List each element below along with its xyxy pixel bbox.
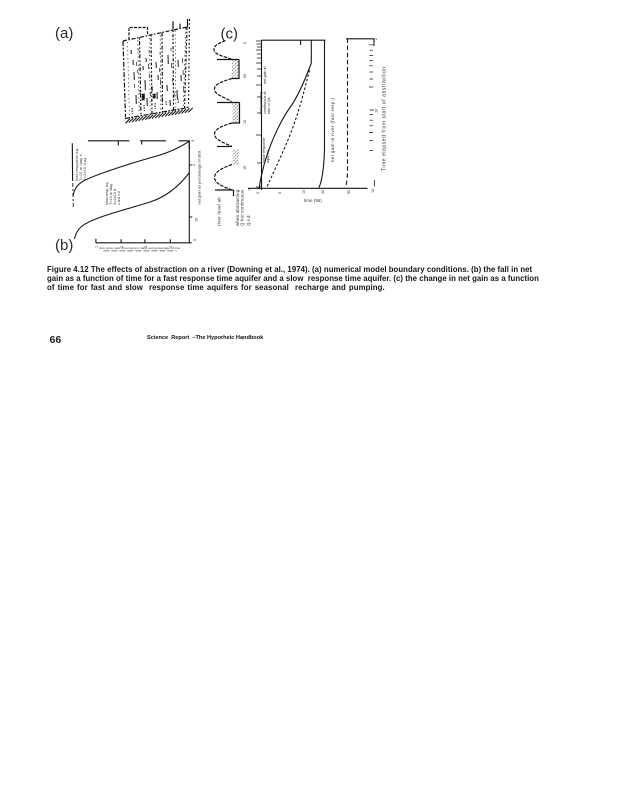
svg-text:3: 3	[191, 140, 195, 142]
svg-text:Time elapsed from start of abs: Time elapsed from start of abstraction	[382, 66, 388, 171]
svg-text:Q s d: Q s d	[246, 215, 251, 226]
svg-text:2: 2	[374, 38, 378, 40]
svg-text:20: 20	[321, 190, 325, 194]
svg-text:50: 50	[243, 74, 247, 78]
svg-text:net gain in river (fast resp.): net gain in river (fast resp.)	[330, 98, 335, 162]
svg-text:2 4: 2 4	[152, 94, 156, 98]
svg-text:5: 5	[278, 192, 282, 194]
svg-text:(a): (a)	[55, 25, 73, 42]
svg-text:10: 10	[371, 189, 375, 193]
svg-text:S=2x10 d ay: S=2x10 d ay	[83, 158, 87, 181]
svg-text:0: 0	[248, 188, 252, 190]
svg-text:0: 0	[193, 239, 197, 241]
svg-text:0: 0	[256, 192, 260, 194]
svg-text:aquifer): aquifer)	[266, 149, 270, 163]
svg-text:time since start of pumping in: time since start of pumping in days and …	[99, 246, 181, 250]
svg-text:rate of Qs: rate of Qs	[267, 97, 271, 114]
svg-text:1: 1	[95, 246, 99, 248]
svg-text:net gain in: net gain in	[263, 66, 267, 84]
svg-text:10: 10	[375, 109, 379, 113]
svg-text:net gain as percentage of abst: net gain as percentage of abst	[197, 150, 202, 205]
svg-text:2: 2	[192, 164, 196, 166]
svg-text:river level ab: river level ab	[217, 197, 222, 226]
svg-text:(c): (c)	[221, 26, 239, 43]
svg-text:c and s d: c and s d	[117, 191, 121, 205]
svg-text:15: 15	[243, 166, 247, 170]
svg-text:10: 10	[302, 190, 306, 194]
svg-text:50: 50	[347, 190, 351, 194]
svg-text:0: 0	[243, 42, 247, 44]
svg-text:10: 10	[243, 120, 247, 124]
svg-text:1 2 1: 1 2 1	[141, 93, 145, 100]
svg-text:(b): (b)	[55, 237, 73, 254]
svg-text:time (95): time (95)	[304, 198, 322, 203]
svg-text:Q but continuous: Q but continuous	[240, 189, 245, 226]
svg-text:10: 10	[195, 218, 199, 222]
